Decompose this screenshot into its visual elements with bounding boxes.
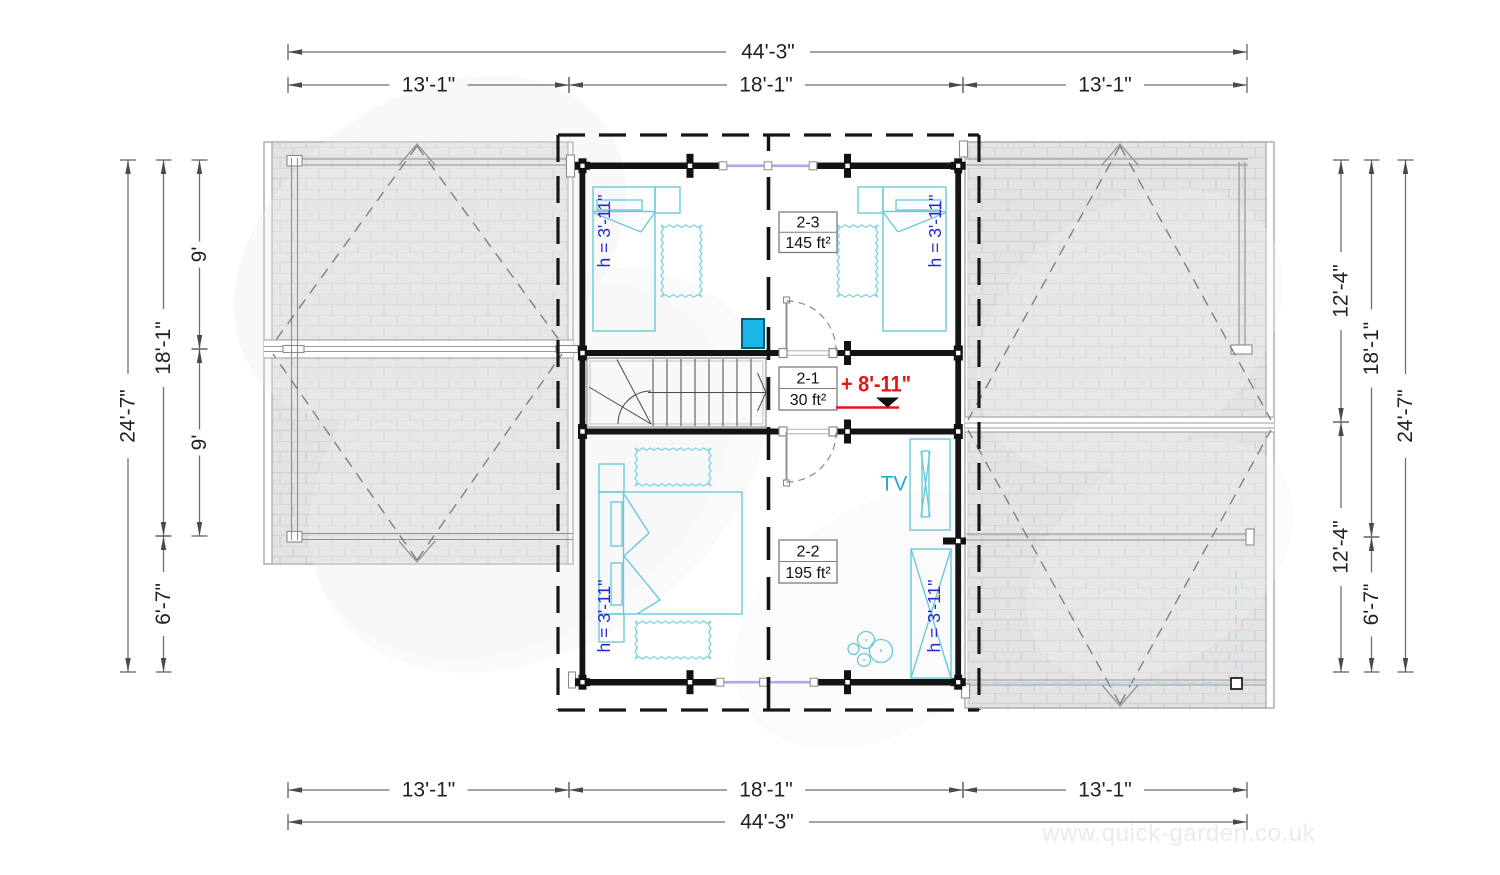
svg-text:44'-3": 44'-3": [741, 41, 795, 64]
svg-text:2-1: 2-1: [796, 370, 819, 387]
svg-text:h = 3'-11": h = 3'-11": [594, 580, 614, 653]
svg-text:18'-1": 18'-1": [739, 74, 793, 97]
svg-text:24'-7": 24'-7": [117, 389, 140, 443]
svg-text:h = 3'-11": h = 3'-11": [924, 580, 944, 653]
svg-text:44'-3": 44'-3": [740, 811, 794, 834]
svg-text:30 ft²: 30 ft²: [790, 392, 827, 409]
svg-text:2-2: 2-2: [796, 543, 819, 560]
svg-text:24'-7": 24'-7": [1394, 389, 1417, 443]
svg-text:+ 8'-11": + 8'-11": [841, 372, 911, 397]
svg-text:12'-4": 12'-4": [1330, 520, 1353, 574]
svg-text:9': 9': [188, 247, 211, 263]
svg-text:h = 3'-11": h = 3'-11": [594, 195, 614, 268]
svg-text:6'-7": 6'-7": [1360, 584, 1383, 626]
svg-text:13'-1": 13'-1": [1078, 779, 1132, 802]
svg-text:www.quick-garden.co.uk: www.quick-garden.co.uk: [1041, 820, 1316, 847]
svg-text:145 ft²: 145 ft²: [785, 235, 831, 252]
svg-text:18'-1": 18'-1": [739, 779, 793, 802]
svg-text:13'-1": 13'-1": [402, 74, 456, 97]
svg-text:TV: TV: [881, 473, 908, 496]
svg-text:2-3: 2-3: [796, 215, 819, 232]
svg-text:9': 9': [188, 435, 211, 451]
svg-text:195 ft²: 195 ft²: [785, 565, 831, 582]
svg-text:h = 3'-11": h = 3'-11": [925, 195, 945, 268]
svg-text:12'-4": 12'-4": [1330, 264, 1353, 318]
svg-text:18'-1": 18'-1": [1360, 322, 1383, 376]
svg-text:6'-7": 6'-7": [152, 583, 175, 625]
svg-text:18'-1": 18'-1": [152, 321, 175, 375]
svg-text:13'-1": 13'-1": [1078, 74, 1132, 97]
svg-text:13'-1": 13'-1": [402, 779, 456, 802]
